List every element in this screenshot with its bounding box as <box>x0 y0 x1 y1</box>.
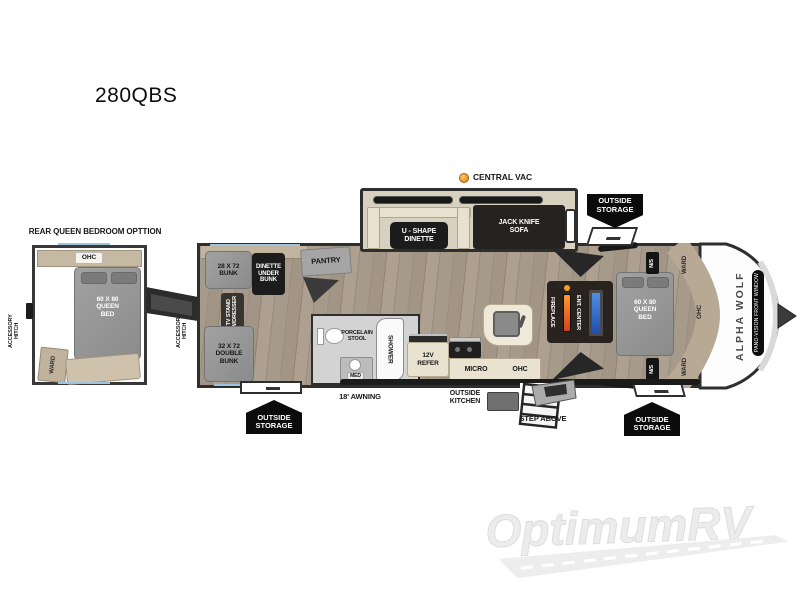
refer-top-vent <box>409 334 447 342</box>
kitchen-sink <box>493 311 520 337</box>
shower-stall: SHOWER <box>376 318 404 381</box>
inset-title: REAR QUEEN BEDROOM OPTTION <box>20 228 170 237</box>
watermark-logo: OptimumRV <box>476 484 799 595</box>
bath-sink <box>349 359 361 371</box>
outside-storage-badge-top: OUTSIDE STORAGE <box>587 194 643 228</box>
brand-label: ALPHA WOLF <box>735 266 747 366</box>
window-trim <box>210 244 300 246</box>
central-vac-label: CENTRAL VAC <box>473 173 532 183</box>
outside-storage-badge-bottom-right: OUTSIDE STORAGE <box>624 402 680 436</box>
fireplace-glow-icon <box>564 285 570 291</box>
floorplan-canvas: 280QBS CENTRAL VAC REAR QUEEN BEDROOM OP… <box>0 0 800 600</box>
kitchen-counter: MICRO OHC <box>449 358 541 380</box>
pillow <box>622 277 644 288</box>
tv-screen <box>589 290 603 336</box>
hitch-receiver <box>26 303 33 319</box>
pantry-label: PANTRY <box>311 256 341 266</box>
central-vac-icon <box>459 173 469 183</box>
inset-ohc-label: OHC <box>82 254 96 261</box>
double-bunk-32x72: 32 X 72 DOUBLE BUNK <box>204 326 254 382</box>
slide-window <box>459 196 543 204</box>
nightstand: N/S <box>646 358 659 380</box>
slide-end-window <box>565 209 576 243</box>
inset-bed-label: 60 X 80 QUEEN BED <box>75 296 140 318</box>
front-window-badge: PANO-VISION FRONT WINDOW <box>752 270 764 356</box>
dinette-under-bunk: DINETTE UNDER BUNK <box>252 253 285 295</box>
outside-storage-badge-bottom-left: OUTSIDE STORAGE <box>246 400 302 434</box>
inset-wardrobe: WARD <box>37 347 68 384</box>
bathroom: PORCELAIN STOOL SHOWER MED <box>311 314 420 385</box>
flap-handle <box>654 390 669 393</box>
nightstand-label: N/S <box>649 259 655 268</box>
flap-handle <box>606 237 621 240</box>
u-dinette-panel: U - SHAPE DINETTE <box>390 222 448 249</box>
window-trim <box>58 382 110 384</box>
pillow <box>81 272 107 284</box>
sink-island <box>483 304 533 346</box>
dinette-bench <box>367 207 471 218</box>
jack-knife-sofa: JACK KNIFE SOFA <box>473 205 565 249</box>
storage-flap <box>586 227 638 246</box>
outside-storage-label: OUTSIDE STORAGE <box>634 416 671 433</box>
u-dinette-label: U - SHAPE DINETTE <box>402 228 437 244</box>
pillow <box>111 272 137 284</box>
inset-ohc-chip: OHC <box>75 252 103 264</box>
ohc-front-label: OHC <box>696 302 703 322</box>
ent-center-label: ENT. CENTER <box>575 285 581 339</box>
nightstand: N/S <box>646 252 659 274</box>
bunk-28x72-label: 28 X 72 BUNK <box>218 263 240 278</box>
refrigerator: 12V REFER <box>407 342 449 377</box>
front-window-label: PANO-VISION FRONT WINDOW <box>755 273 761 352</box>
fireplace-label: FIREPLACE <box>549 287 555 337</box>
slide-window <box>373 196 453 204</box>
front-wardrobe-band <box>662 243 726 388</box>
toilet-tank <box>317 328 324 345</box>
ohc-kitchen-label: OHC <box>502 366 538 374</box>
tv-stand-label: TV STAND W/DRESSER <box>226 296 238 328</box>
storage-flap <box>240 381 302 394</box>
ward-front-label: WARD <box>682 354 689 380</box>
ent-center-unit: FIREPLACE ENT. CENTER <box>547 281 613 343</box>
micro-label: MICRO <box>456 366 496 374</box>
outside-storage-label: OUTSIDE STORAGE <box>256 414 293 431</box>
awning-label: 18' AWNING <box>330 393 390 401</box>
dinette-under-bunk-label: DINETTE UNDER BUNK <box>256 264 281 284</box>
window-trim <box>58 243 110 245</box>
inset-ward-label: WARD <box>49 356 58 375</box>
burner <box>455 347 460 352</box>
tv-glass <box>592 293 600 333</box>
pantry: PANTRY <box>300 246 352 276</box>
bunk-28x72: 28 X 72 BUNK <box>205 251 252 289</box>
page-title: 280QBS <box>95 84 177 108</box>
outside-kitchen-label: OUTSIDE KITCHEN <box>443 390 487 406</box>
step-above-label: STEP ABOVE <box>513 415 573 423</box>
fireplace-insert <box>563 294 571 332</box>
shower-label: SHOWER <box>386 335 393 364</box>
refer-label: 12V REFER <box>417 352 439 367</box>
ward-front-label: WARD <box>682 252 689 278</box>
porcelain-stool-label: PORCELAIN STOOL <box>335 330 379 342</box>
dinette-bench <box>457 207 470 249</box>
range-cooktop <box>449 342 481 358</box>
outside-kitchen-griddle <box>528 378 578 408</box>
flap-handle <box>266 387 280 390</box>
burner <box>467 347 472 352</box>
accessory-hitch-label-left: ACCESSORY HITCH <box>8 306 20 356</box>
top-slide-out: U - SHAPE DINETTE JACK KNIFE SOFA <box>360 188 578 252</box>
dinette-bench <box>367 207 380 249</box>
outside-kitchen-compartment <box>487 392 519 411</box>
storage-flap <box>632 383 686 397</box>
inset-queen-bed: 60 X 80 QUEEN BED <box>74 267 141 360</box>
rear-door-ramp <box>144 281 200 325</box>
nightstand-label: N/S <box>649 365 655 374</box>
sofa-label: JACK KNIFE SOFA <box>498 219 539 235</box>
double-bunk-label: 32 X 72 DOUBLE BUNK <box>216 343 243 365</box>
